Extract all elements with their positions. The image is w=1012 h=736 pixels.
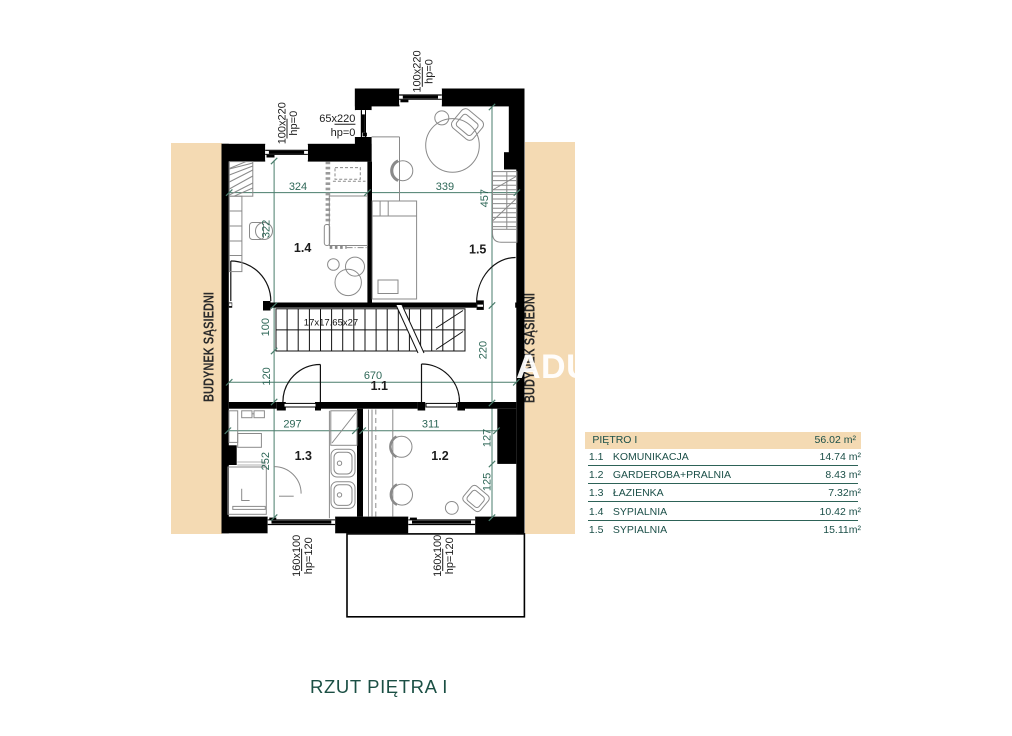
svg-text:65x220: 65x220: [319, 113, 355, 125]
svg-text:100: 100: [260, 318, 272, 336]
svg-text:127: 127: [482, 429, 494, 447]
svg-text:1.3: 1.3: [295, 449, 312, 463]
svg-text:322: 322: [261, 220, 273, 238]
svg-text:252: 252: [260, 452, 272, 470]
svg-text:120: 120: [261, 367, 273, 385]
svg-text:339: 339: [436, 181, 454, 193]
svg-text:hp=120: hp=120: [444, 537, 456, 574]
svg-text:297: 297: [283, 419, 301, 431]
svg-text:1.1: 1.1: [371, 379, 388, 393]
svg-text:hp=0: hp=0: [288, 111, 300, 136]
svg-text:hp=0: hp=0: [331, 127, 356, 139]
svg-text:1.4: 1.4: [294, 241, 311, 255]
svg-text:311: 311: [422, 419, 440, 431]
svg-text:hp=0: hp=0: [424, 59, 436, 84]
svg-text:220: 220: [478, 341, 490, 359]
svg-text:457: 457: [479, 189, 491, 207]
svg-text:1.5: 1.5: [469, 243, 486, 257]
svg-text:1.2: 1.2: [431, 449, 448, 463]
svg-text:324: 324: [289, 181, 307, 193]
svg-text:17x17.65x27: 17x17.65x27: [304, 318, 358, 329]
svg-text:hp=120: hp=120: [303, 537, 315, 574]
svg-text:125: 125: [482, 473, 494, 491]
